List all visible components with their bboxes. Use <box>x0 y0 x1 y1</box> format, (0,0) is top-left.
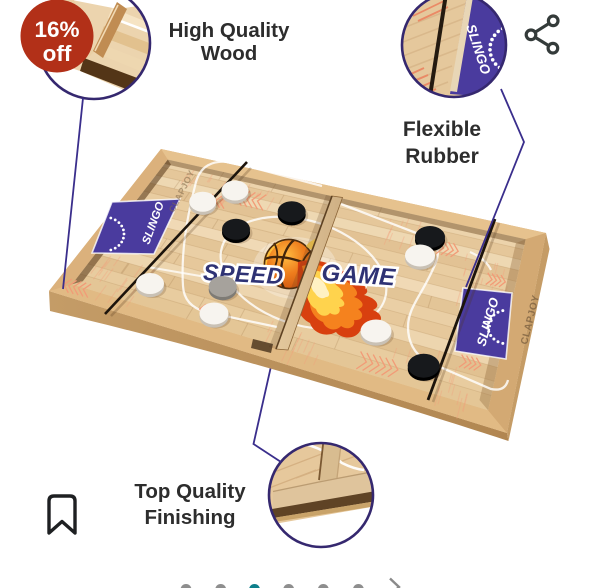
svg-text:GAME: GAME <box>321 259 397 291</box>
svg-text:Top Quality: Top Quality <box>134 480 246 503</box>
svg-text:High Quality: High Quality <box>169 19 290 42</box>
svg-text:off: off <box>43 41 72 66</box>
svg-text:16%: 16% <box>34 17 79 42</box>
svg-text:Rubber: Rubber <box>405 145 479 168</box>
svg-text:Wood: Wood <box>201 42 258 65</box>
svg-text:Flexible: Flexible <box>403 118 481 141</box>
svg-text:Finishing: Finishing <box>144 506 235 529</box>
